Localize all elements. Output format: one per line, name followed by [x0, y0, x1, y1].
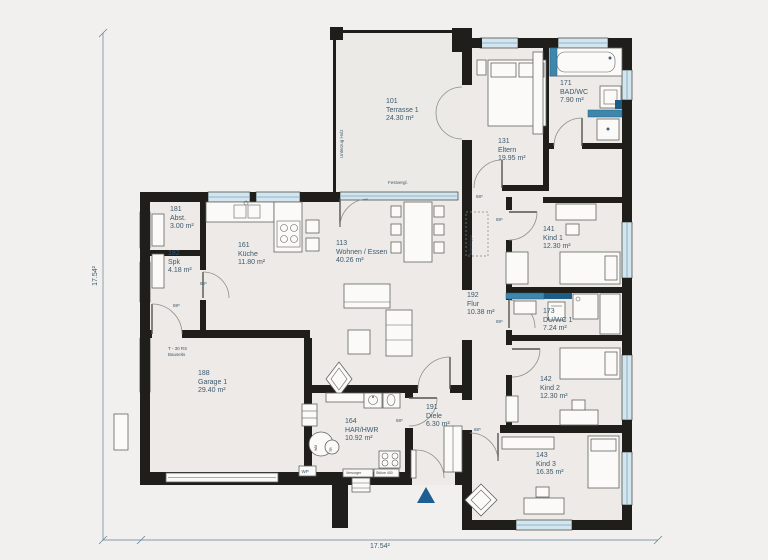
meter-cabinet [302, 404, 317, 426]
room-label-abst: 181 Abst. 3.00 m² [170, 206, 194, 232]
room-area: 19.95 m² [498, 155, 526, 164]
room-label-kind1: 141 Kind 1 12.30 m² [543, 226, 571, 252]
door-size-label: 88⁵ [474, 427, 481, 432]
entry-marker-triangle [417, 487, 435, 503]
room-label-spk: 182 Spk 4.18 m² [168, 250, 192, 276]
room-area: 40.26 m² [336, 257, 387, 266]
wardrobe-eltern [533, 52, 543, 134]
utility-label-right: Stütze 400 [376, 471, 393, 475]
wardrobe-kind1 [506, 252, 528, 284]
room-name: HAR/HWR [345, 427, 378, 436]
armchair [348, 330, 370, 354]
room-name: Spk [168, 259, 192, 268]
room-label-wohnen: 113 Wohnen / Essen 40.26 m² [336, 240, 387, 266]
room-number: 143 [536, 452, 564, 461]
door-size-label: 88⁵ [476, 194, 483, 199]
room-name: BAD/WC [560, 89, 588, 98]
room-label-bad: 171 BAD/WC 7.90 m² [560, 80, 588, 106]
room-label-diele: 191 Diele 6.30 m² [426, 404, 450, 430]
dining-table [404, 202, 432, 262]
room-name: Garage 1 [198, 379, 227, 388]
room-label-kind2: 142 Kind 2 12.30 m² [540, 376, 568, 402]
beam-label: Unterzug Holz [339, 98, 344, 158]
room-label-garage: 188 Garage 1 29.40 m² [198, 370, 227, 396]
room-number: 171 [560, 80, 588, 89]
room-number: 182 [168, 250, 192, 259]
room-name: Diele [426, 413, 450, 422]
floor-plan: 101 Terrasse 1 24.30 m² 131 Eltern 19.95… [0, 0, 768, 560]
room-number: 101 [386, 98, 419, 107]
room-area: 10.92 m² [345, 435, 378, 444]
room-area: 7.24 m² [543, 325, 573, 334]
door-size-label: 88⁵ [496, 319, 503, 324]
room-label-kind3: 143 Kind 3 16.35 m² [536, 452, 564, 478]
room-label-har: 164 HAR/HWR 10.92 m² [345, 418, 378, 444]
room-name: Kind 1 [543, 235, 571, 244]
room-name: Eltern [498, 147, 526, 156]
door-size-label: 88⁵ [396, 418, 403, 423]
shelf-kind3 [502, 437, 554, 449]
door-size-label: 88⁵ [173, 303, 180, 308]
room-area: 12.30 m² [540, 393, 568, 402]
door-size-label: 88⁵ [200, 281, 207, 286]
room-number: 192 [467, 292, 495, 301]
room-name: Kind 2 [540, 385, 568, 394]
door-size-label: 88⁵ [496, 217, 503, 222]
room-area: 3.00 m² [170, 223, 194, 232]
room-number: 141 [543, 226, 571, 235]
dimension-height-label: 17.54² [92, 266, 99, 286]
room-area: 16.35 m² [536, 469, 564, 478]
fire-door-label-2: Bauseits [168, 352, 185, 357]
room-area: 10.38 m² [467, 309, 495, 318]
fire-door-label-1: T - 30 RS [168, 346, 187, 351]
room-label-flur: 192 Flur 10.38 m² [467, 292, 495, 318]
room-number: 164 [345, 418, 378, 427]
room-label-kueche: 161 Küche 11.80 m² [238, 242, 265, 268]
room-number: 131 [498, 138, 526, 147]
room-area: 24.30 m² [386, 115, 419, 124]
entry-step [352, 478, 370, 492]
room-label-eltern: 131 Eltern 19.95 m² [498, 138, 526, 164]
room-number: 188 [198, 370, 227, 379]
room-name: Abst. [170, 215, 194, 224]
shower-screen [544, 293, 572, 299]
room-name: Kind 3 [536, 461, 564, 470]
room-name: Küche [238, 251, 265, 260]
room-number: 161 [238, 242, 265, 251]
exterior-element [114, 414, 128, 450]
room-area: 6.30 m² [426, 421, 450, 430]
room-number: 191 [426, 404, 450, 413]
desk-kind1 [556, 204, 596, 220]
sofa [344, 284, 390, 308]
attic-stairs-label: Bodentreppe [469, 215, 473, 255]
room-area: 29.40 m² [198, 387, 227, 396]
heat-pump-label: WP [302, 469, 309, 474]
room-number: 113 [336, 240, 387, 249]
room-area: 7.90 m² [560, 97, 588, 106]
wardrobe-kind2 [506, 396, 518, 422]
dimension-width-label: 17.54² [370, 543, 390, 550]
utility-label-left: Versorger [346, 471, 361, 475]
floor-plan-graphic [0, 0, 768, 560]
desk-kind2 [560, 410, 598, 425]
room-area: 4.18 m² [168, 267, 192, 276]
room-number: 173 [543, 308, 573, 317]
washer-label: WM [314, 437, 318, 451]
dryer-label: TR [329, 442, 333, 452]
washbasin-duwc [514, 301, 536, 314]
room-label-terrasse: 101 Terrasse 1 24.30 m² [386, 98, 419, 124]
fixed-glazing-label: Festvergl. [388, 180, 408, 185]
room-label-duwc: 173 DU/WC 1 7.24 m² [543, 308, 573, 334]
room-name: Flur [467, 301, 495, 310]
desk-kind3 [524, 498, 564, 514]
room-area: 11.80 m² [238, 259, 265, 268]
room-number: 142 [540, 376, 568, 385]
room-name: Wohnen / Essen [336, 249, 387, 258]
column-stub [332, 485, 348, 528]
room-name: DU/WC 1 [543, 317, 573, 326]
entry-door-leaf [411, 450, 416, 478]
room-name: Terrasse 1 [386, 107, 419, 116]
room-number: 181 [170, 206, 194, 215]
room-area: 12.30 m² [543, 243, 571, 252]
